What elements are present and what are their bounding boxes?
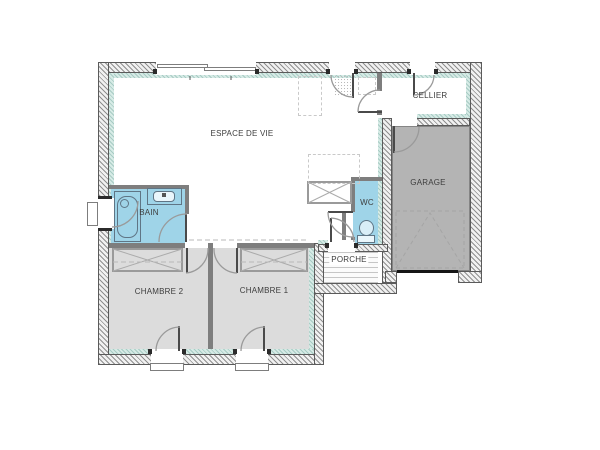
kitchen-unit-dashed-1: [298, 76, 322, 116]
insulation-right-bedrooms: [309, 248, 314, 349]
closet-chambre2: [112, 248, 183, 272]
window-chambre1-leaf: [263, 326, 265, 351]
bathtub-drain: [120, 199, 129, 208]
partition-bedrooms-middle: [208, 243, 213, 349]
garage-door-line: [397, 270, 458, 273]
partition-bain-right: [185, 185, 189, 214]
wall-right-bedrooms: [314, 243, 324, 365]
wall-right-garage: [470, 62, 482, 283]
room-label-bain: BAIN: [139, 209, 158, 217]
wall-garage-left: [382, 118, 392, 283]
wall-porch-bottom: [314, 283, 397, 294]
kitchen-unit-dashed-3: [358, 77, 376, 95]
wall-garage-bottom-left: [385, 271, 397, 283]
door-entry-leaf: [352, 73, 354, 98]
door-garage-leaf: [393, 126, 395, 153]
door-porch-opening: [328, 240, 355, 252]
closet-hall: [307, 181, 352, 204]
wall-garage-bottom-right: [458, 271, 482, 283]
window-chambre2-sill: [150, 363, 184, 371]
window-living-leaf-outer: [157, 64, 208, 68]
door-chambre1-leaf: [236, 248, 238, 273]
door-porch-leaf: [330, 218, 332, 242]
room-label-espace-de-vie: ESPACE DE VIE: [211, 130, 274, 138]
window-bain-shutter-box: [87, 202, 98, 226]
insulation-garage-left: [378, 118, 382, 244]
door-garage-opening: [392, 113, 417, 126]
door-cellier-hall-leaf: [358, 111, 382, 113]
closet-chambre1: [240, 248, 308, 272]
door-bain-leaf: [185, 214, 187, 242]
door-wc-leaf: [328, 211, 353, 213]
room-label-chambre-2: CHAMBRE 2: [135, 288, 183, 296]
room-label-cellier: CELLIER: [413, 92, 448, 100]
insulation-bottom-bedrooms: [109, 349, 314, 354]
toilet-tank: [357, 235, 375, 243]
window-chambre2-leaf: [178, 326, 180, 351]
garage-floor: [392, 126, 470, 271]
room-label-garage: GARAGE: [410, 179, 445, 187]
room-label-porche: PORCHE: [329, 255, 368, 265]
door-chambre2-leaf: [186, 248, 188, 273]
window-living-leaf-inner: [204, 67, 256, 71]
sink-faucet: [162, 193, 166, 197]
wall-bottom-bedrooms: [98, 354, 324, 365]
kitchen-unit-dashed-2: [308, 154, 360, 184]
insulation-cellier-right: [466, 73, 470, 118]
room-label-wc: WC: [360, 199, 374, 207]
floor-plan: ESPACE DE VIE CELLIER GARAGE BAIN WC POR…: [0, 0, 600, 450]
room-label-chambre-1: CHAMBRE 1: [240, 287, 288, 295]
toilet-bowl: [359, 220, 374, 236]
window-bain-opening: [98, 198, 114, 229]
window-chambre1-sill: [235, 363, 269, 371]
partition-hall-cellier-upper: [377, 73, 382, 91]
